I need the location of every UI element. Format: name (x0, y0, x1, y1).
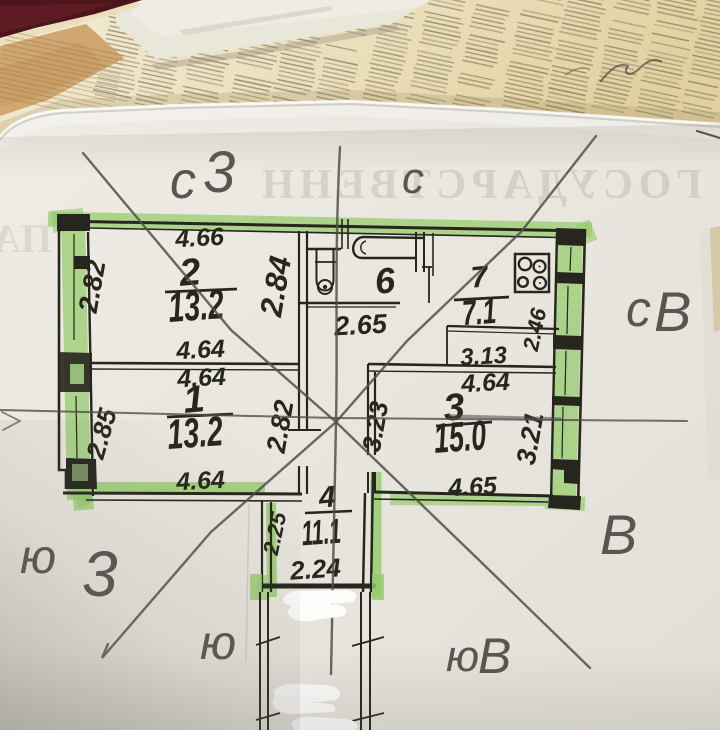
svg-text:В: В (600, 503, 637, 566)
svg-text:4.64: 4.64 (460, 368, 511, 399)
svg-text:2.65: 2.65 (333, 309, 389, 342)
svg-text:4.65: 4.65 (447, 472, 499, 503)
svg-text:ПА: ПА (0, 216, 52, 261)
svg-text:ГОСУДАРСТВЕНН: ГОСУДАРСТВЕНН (257, 162, 702, 208)
svg-text:В: В (654, 280, 691, 343)
svg-text:4.64: 4.64 (175, 335, 226, 366)
svg-text:11.1: 11.1 (300, 512, 342, 553)
svg-text:с: с (626, 281, 651, 337)
svg-text:3.13: 3.13 (460, 342, 509, 371)
svg-text:4.66: 4.66 (174, 223, 226, 254)
svg-text:7.1: 7.1 (461, 293, 498, 334)
